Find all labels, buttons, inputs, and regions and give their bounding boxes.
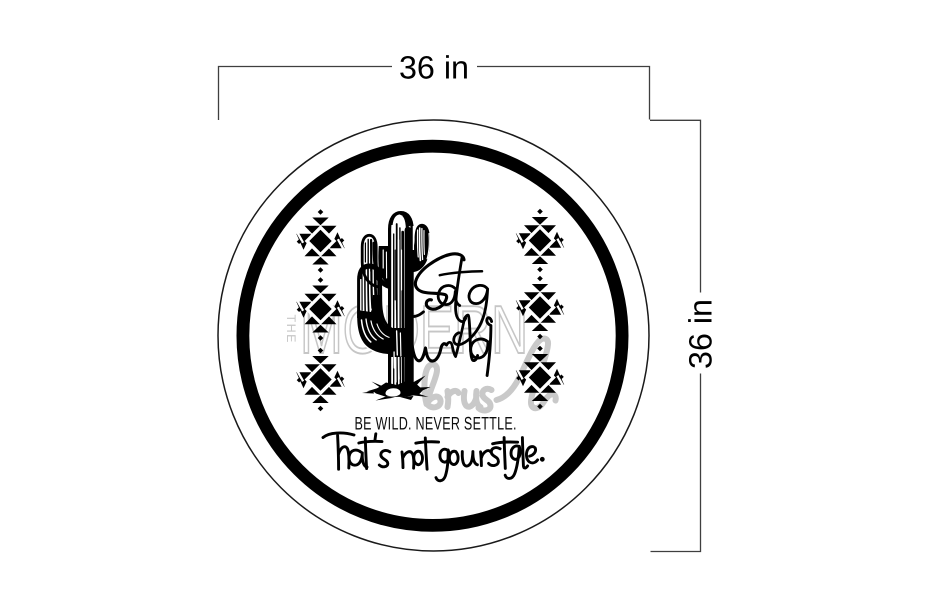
svg-text:THE: THE <box>284 315 298 345</box>
svg-text:36 in: 36 in <box>399 50 469 86</box>
svg-text:36 in: 36 in <box>683 299 719 369</box>
svg-text:BE WILD. NEVER SETTLE.: BE WILD. NEVER SETTLE. <box>355 414 517 434</box>
